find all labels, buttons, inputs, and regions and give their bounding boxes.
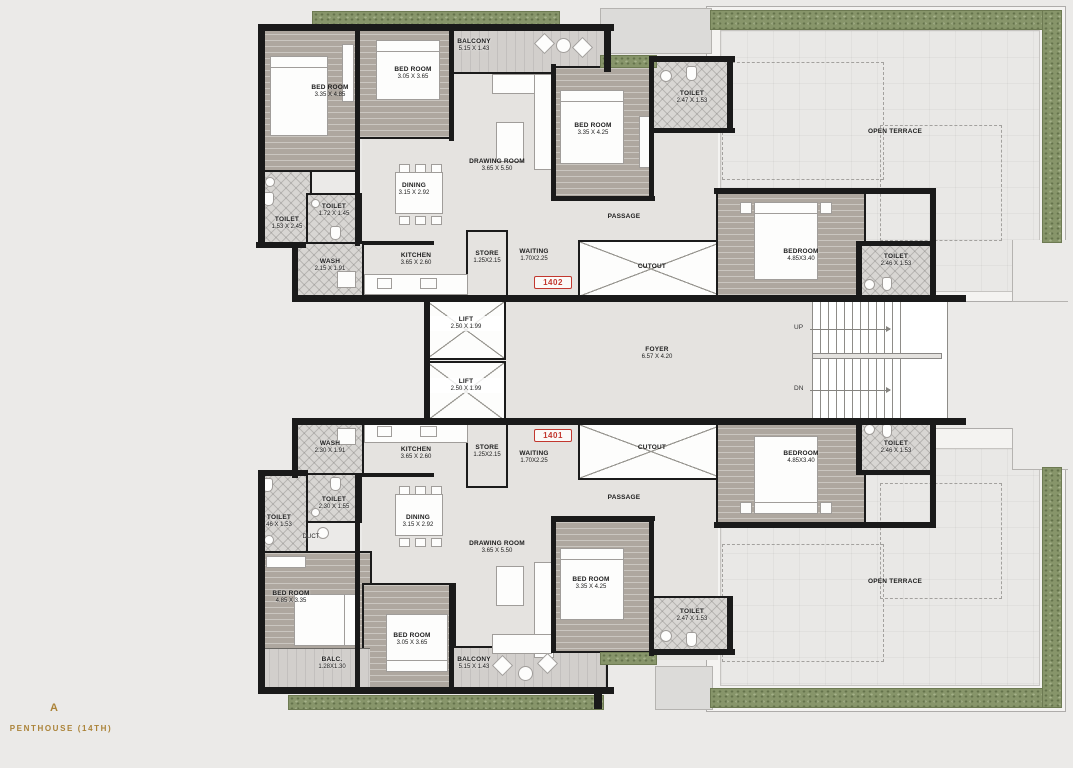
- room-label-bedroom2-1401: BED ROOM3.05 X 3.65: [377, 632, 447, 647]
- coffee-table: [496, 566, 524, 606]
- chair: [415, 216, 426, 225]
- room-label-toilet2-1402: TOILET1.72 X 1.45: [308, 203, 360, 218]
- room-label-wash-1402: WASH2.15 X 1.91: [298, 258, 362, 273]
- room-label-lift2: LIFT2.50 X 1.99: [430, 378, 502, 393]
- room-label-passage-1401: PASSAGE: [592, 494, 656, 502]
- bed-pillow: [754, 202, 818, 214]
- room-label-toilet4-1402: TOILET2.46 X 1.53: [862, 253, 930, 268]
- wall: [258, 470, 265, 694]
- washbasin-icon: [264, 535, 274, 545]
- wall: [362, 473, 434, 477]
- wall: [727, 56, 733, 133]
- stair-rail: [812, 353, 942, 359]
- room-label-toilet4-1401: TOILET2.46 X 1.53: [862, 440, 930, 455]
- sink-icon: [420, 278, 437, 289]
- room-label-lift1: LIFT2.50 X 1.99: [430, 316, 502, 331]
- chair: [431, 538, 442, 547]
- chair: [399, 216, 410, 225]
- room-label-balcony-1402: BALCONY5.15 X 1.43: [444, 38, 504, 53]
- room-label-dining-1402: DINING3.15 X 2.92: [384, 182, 444, 197]
- wall: [449, 583, 454, 692]
- room-label-drawing-1401: DRAWING ROOM3.65 X 5.50: [455, 540, 539, 555]
- room-label-cutout-1401: CUTOUT: [622, 444, 682, 452]
- wall: [258, 24, 614, 31]
- wall: [258, 24, 265, 248]
- room-label-bedroom3-1401: BED ROOM3.35 X 4.25: [556, 576, 626, 591]
- washing-machine-icon: [337, 271, 356, 288]
- wall: [856, 241, 934, 246]
- bed-pillow: [270, 56, 328, 68]
- wall: [649, 56, 735, 62]
- dn-arrow-icon: [810, 390, 890, 391]
- washbasin-icon: [864, 279, 875, 290]
- room-label-foyer: FOYER6.57 X 4.20: [617, 346, 697, 361]
- side-table: [740, 502, 752, 514]
- toilet-wc-icon: [882, 424, 892, 438]
- room-label-wash-1401: WASH2.30 X 1.91: [298, 440, 362, 455]
- room-label-bedroom4-1402: BEDROOM4.85X3.40: [766, 248, 836, 263]
- planter-terrace-top-right: [1042, 10, 1062, 243]
- room-label-duct-1401: DUCT: [296, 534, 326, 541]
- coffee-table: [496, 122, 524, 162]
- wall: [649, 518, 654, 656]
- bed-pillow: [754, 502, 818, 514]
- terrace-top-projection-dashed-2: [880, 125, 1002, 241]
- planter-bottom-unit-edge: [288, 695, 604, 710]
- bed-pillow: [376, 40, 440, 52]
- room-label-bedroom1-1402: BED ROOM3.35 X 4.85: [295, 84, 365, 99]
- toilet-wc-icon: [330, 477, 341, 491]
- room-label-bedroom3-1402: BED ROOM3.35 X 4.25: [558, 122, 628, 137]
- room-label-store-1401: STORE1.25X2.15: [466, 444, 508, 459]
- wall: [727, 596, 733, 655]
- toilet-wc-icon: [686, 66, 697, 81]
- room-label-balcony-1401: BALCONY5.15 X 1.43: [444, 656, 504, 671]
- sink-icon: [420, 426, 437, 437]
- side-table: [820, 202, 832, 214]
- chair: [399, 164, 410, 173]
- washbasin-icon: [660, 70, 672, 82]
- up-arrow-icon: [810, 329, 890, 330]
- stair-treads: [812, 300, 904, 418]
- wall: [551, 516, 655, 521]
- room-label-toilet1-1402: TOILET1.53 X 2.45: [263, 216, 311, 231]
- wall: [856, 241, 862, 302]
- balcony-table-icon: [518, 666, 533, 681]
- planter-terrace-bottom-right: [1042, 467, 1062, 708]
- wall: [594, 687, 602, 709]
- room-label-kitchen-1402: KITCHEN3.65 X 2.60: [382, 252, 450, 267]
- room-label-cutout-1402: CUTOUT: [622, 263, 682, 271]
- sofa: [492, 634, 552, 654]
- room-label-waiting-1401: WAITING1.70X2.25: [506, 450, 562, 465]
- unit-number-badge-1402: 1402: [534, 276, 572, 289]
- room-label-toilet3-1402: TOILET2.47 X 1.53: [660, 90, 724, 105]
- block-letter: A: [25, 702, 85, 714]
- wall: [649, 56, 654, 199]
- hob-icon: [377, 426, 392, 437]
- bed-pillow: [560, 90, 624, 102]
- chair: [415, 538, 426, 547]
- wall: [649, 128, 735, 133]
- room-label-waiting-1402: WAITING1.70X2.25: [506, 248, 562, 263]
- floor-title: PENTHOUSE (14TH): [3, 724, 119, 733]
- bed-pillow: [386, 660, 448, 672]
- room-label-kitchen-1401: KITCHEN3.65 X 2.60: [382, 446, 450, 461]
- chair: [415, 486, 426, 495]
- wall: [649, 649, 735, 655]
- terrace-bottom-projection-dashed: [722, 544, 884, 662]
- wall: [551, 196, 655, 201]
- terrace-bottom-corner-notch: [1012, 428, 1068, 470]
- room-label-toilet2-1401: TOILET46 X 1.53: [258, 514, 300, 529]
- toilet-wc-icon: [882, 277, 892, 291]
- washbasin-icon: [660, 630, 672, 642]
- wall: [292, 295, 966, 302]
- room-label-bedroom4-1401: BEDROOM4.85X3.40: [766, 450, 836, 465]
- planter-terrace-top-edge: [710, 10, 1062, 30]
- unit-number-badge-1401: 1401: [534, 429, 572, 442]
- room-label-store-1402: STORE1.25X2.15: [466, 250, 508, 265]
- stair-up-label: UP: [794, 324, 803, 331]
- room-label-drawing-1402: DRAWING ROOM3.65 X 5.50: [455, 158, 539, 173]
- chair: [431, 164, 442, 173]
- wardrobe: [266, 556, 306, 568]
- wall: [258, 687, 614, 694]
- wall: [714, 522, 936, 528]
- wall: [362, 241, 434, 245]
- balcony-table-icon: [556, 38, 571, 53]
- terrace-ledge-bottom: [655, 666, 713, 710]
- room-label-toilet3-1401: TOILET2.47 X 1.53: [660, 608, 724, 623]
- room-label-toilet1-1401: TOILET2.30 X 1.55: [308, 496, 360, 511]
- washbasin-icon: [265, 177, 275, 187]
- chair: [431, 486, 442, 495]
- chair: [415, 164, 426, 173]
- planter-terrace-bottom-edge: [710, 688, 1062, 708]
- room-label-bedroom2-1402: BED ROOM3.05 X 3.65: [373, 66, 453, 81]
- wall: [714, 188, 936, 194]
- side-table: [820, 502, 832, 514]
- toilet-wc-icon: [330, 226, 341, 240]
- chair: [399, 538, 410, 547]
- terrace-ledge-top: [600, 8, 712, 54]
- side-table: [740, 202, 752, 214]
- wall: [256, 242, 306, 248]
- room-label-passage-1402: PASSAGE: [592, 213, 656, 221]
- floor-plan: OPEN TERRACE OPEN TERRACE UP DN: [0, 0, 1073, 768]
- room-label-open-terrace-top: OPEN TERRACE: [815, 128, 975, 136]
- terrace-top-corner-notch: [1012, 240, 1068, 302]
- wall: [551, 64, 556, 199]
- washbasin-icon: [864, 424, 875, 435]
- room-label-dining-1401: DINING3.15 X 2.92: [388, 514, 448, 529]
- room-label-open-terrace-bottom: OPEN TERRACE: [815, 578, 975, 586]
- wall: [604, 24, 611, 72]
- wall: [856, 470, 934, 475]
- staircase: [812, 300, 948, 418]
- toilet-wc-icon: [686, 632, 697, 647]
- chair: [399, 486, 410, 495]
- room-label-bedroom1-1401: BED ROOM4.85 X 3.35: [256, 590, 326, 605]
- stair-dn-label: DN: [794, 385, 803, 392]
- hob-icon: [377, 278, 392, 289]
- room-label-balc-1401: BALC.1.28X1.30: [308, 656, 356, 671]
- chair: [431, 216, 442, 225]
- wall: [258, 470, 308, 476]
- bed-pillow: [560, 548, 624, 560]
- terrace-top-projection-dashed: [722, 62, 884, 180]
- wall: [292, 418, 966, 425]
